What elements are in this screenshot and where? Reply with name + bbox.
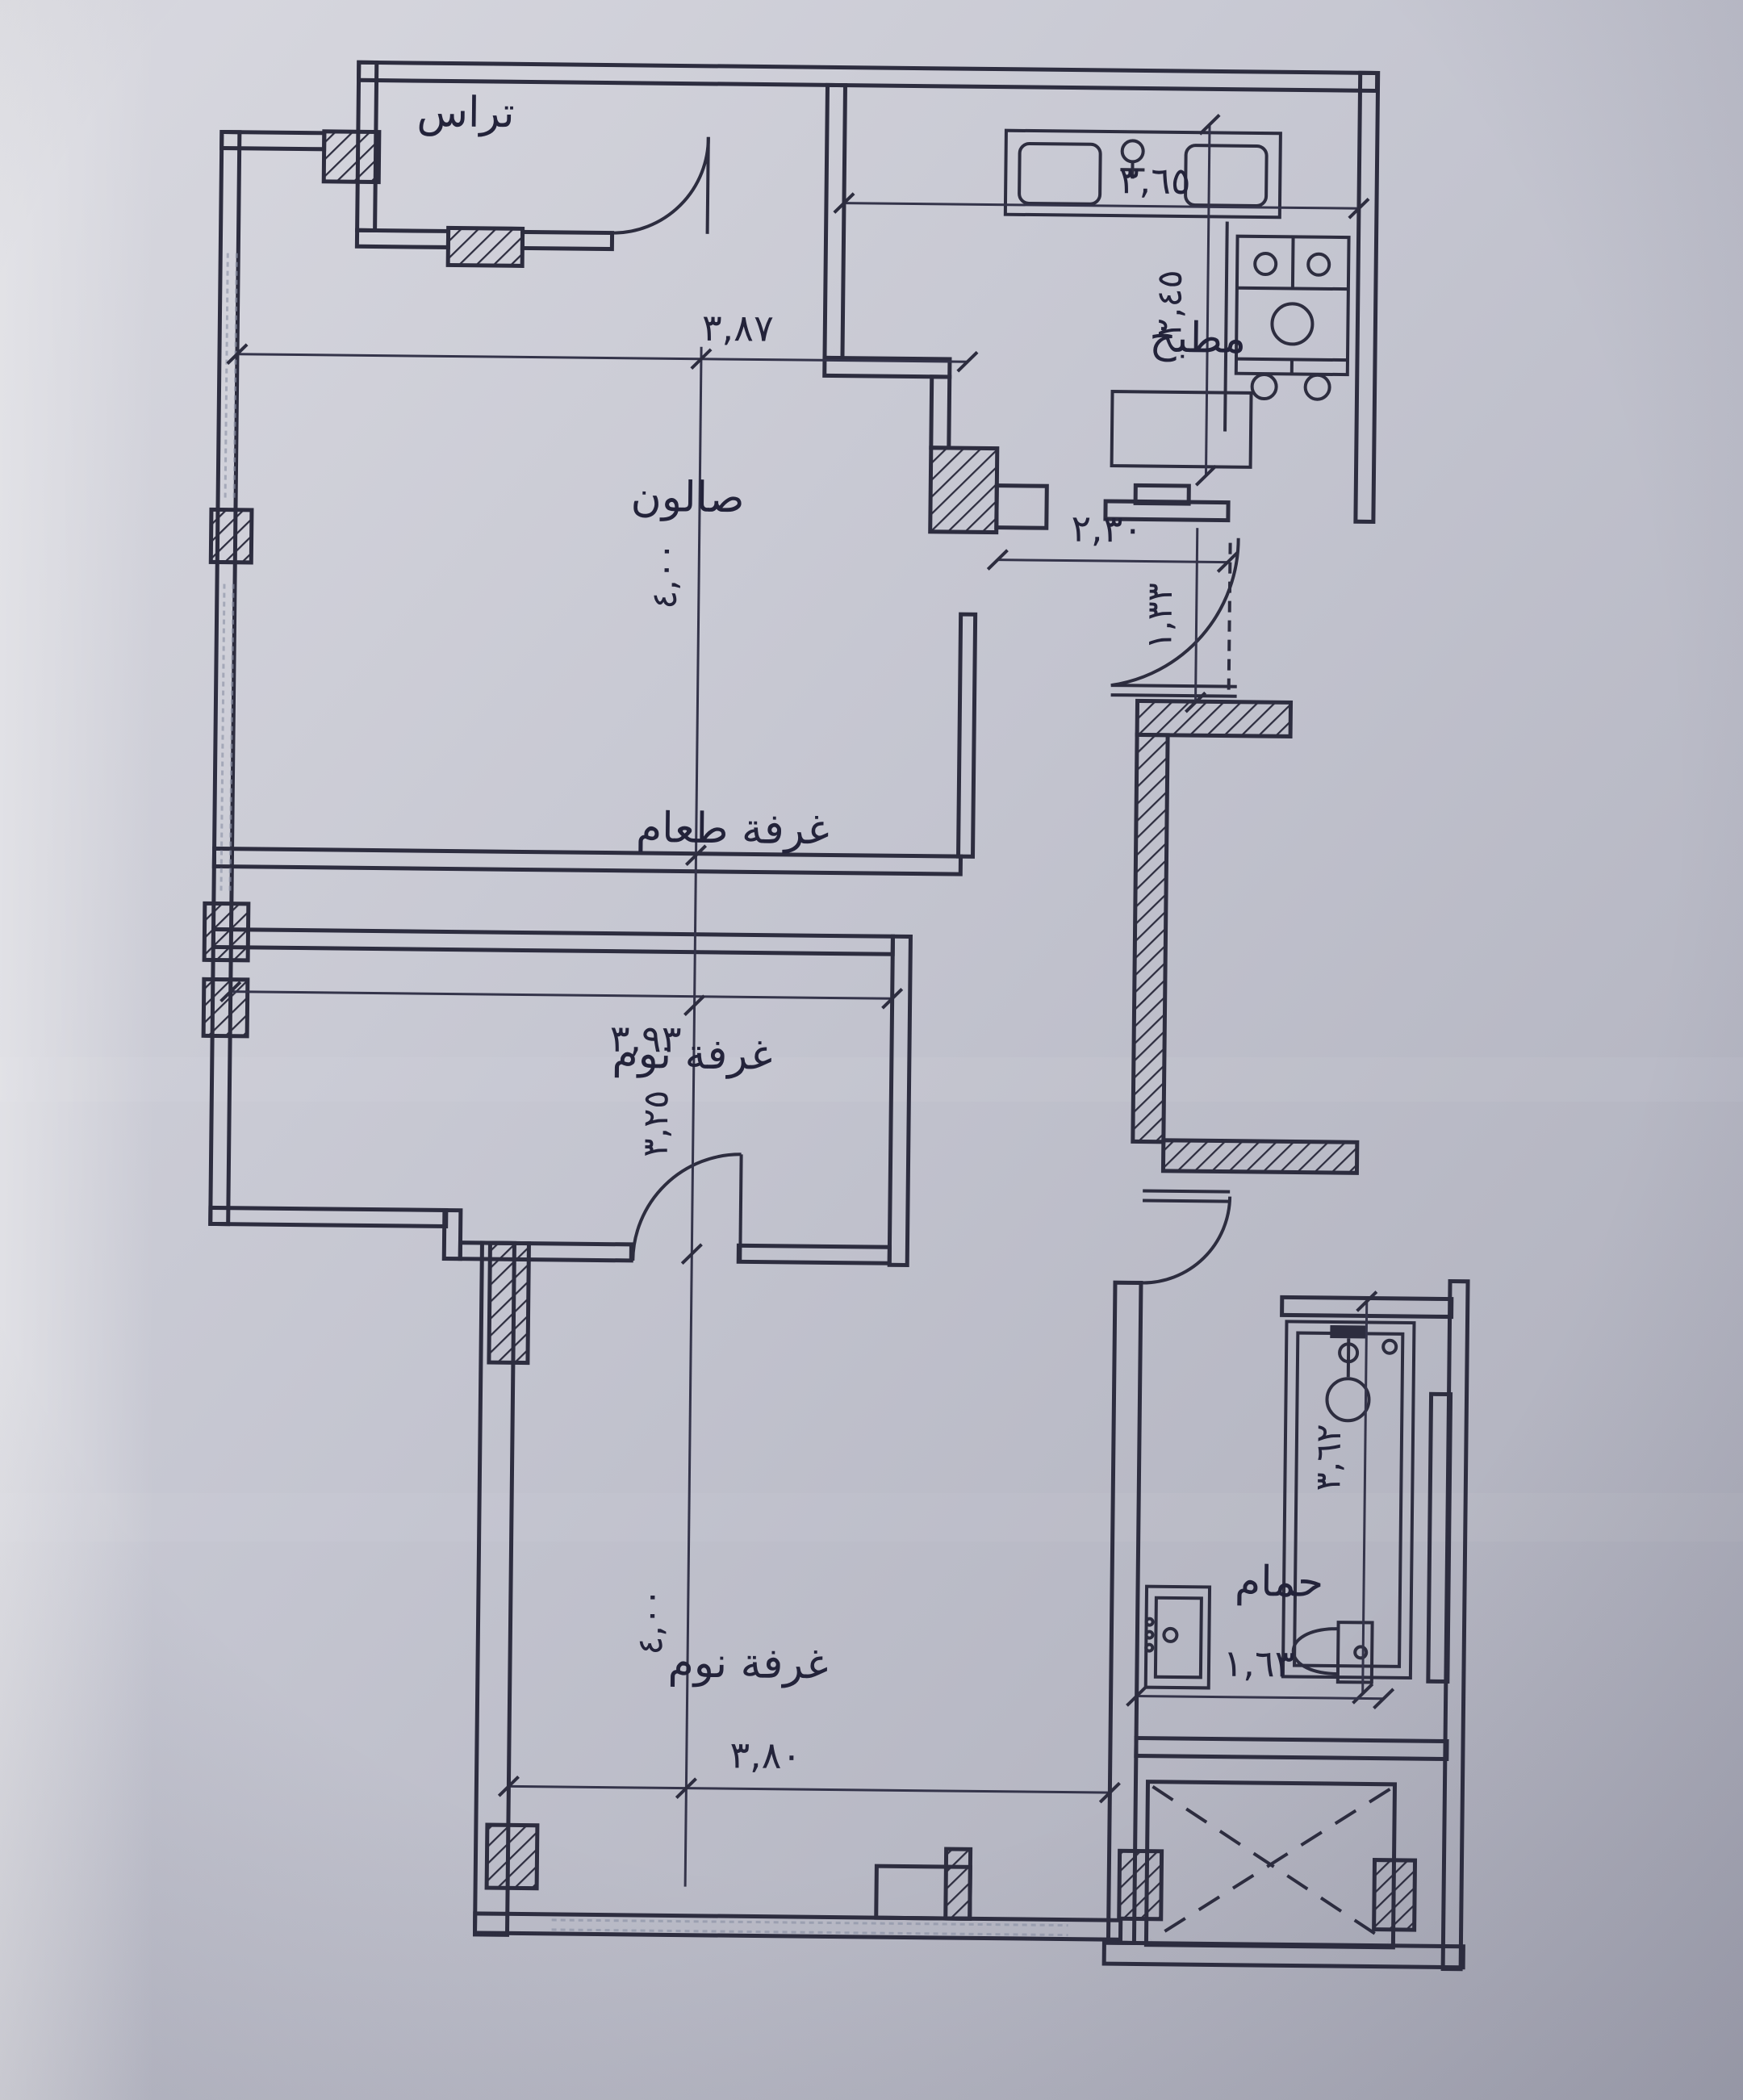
photo-vignette <box>0 0 1743 2100</box>
floor-plan-photo: ٣,٦٥ ٢,٤٥ ٣,٨٧ ٢,٣٠ ١,٣٣ ٣,٩٣ <box>0 0 1743 2100</box>
floor-plan-canvas: ٣,٦٥ ٢,٤٥ ٣,٨٧ ٢,٣٠ ١,٣٣ ٣,٩٣ <box>0 0 1743 2100</box>
